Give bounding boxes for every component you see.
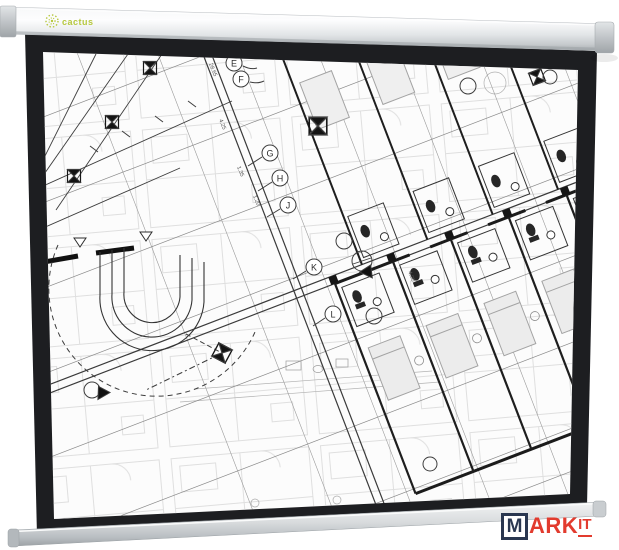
- svg-text:K: K: [311, 263, 317, 273]
- brand-name: cactus: [62, 17, 94, 27]
- watermark-letter-box: M: [501, 513, 528, 540]
- markit-watermark: M ARK IT: [501, 513, 592, 540]
- svg-text:G: G: [266, 149, 273, 159]
- svg-text:J: J: [286, 201, 291, 211]
- bar-left-cap: [8, 529, 19, 547]
- casing-left-cap: [0, 6, 16, 37]
- svg-text:F: F: [238, 75, 244, 85]
- svg-text:H: H: [277, 174, 284, 184]
- projection-screen-graphic: E F G H J K L 28.65 4.25: [0, 0, 619, 550]
- casing-right-cap: [595, 22, 614, 53]
- blueprint-drawing: E F G H J K L 28.65 4.25: [0, 0, 619, 550]
- watermark-text: ARK: [529, 513, 578, 538]
- svg-text:E: E: [231, 59, 237, 69]
- bar-right-cap: [593, 501, 606, 517]
- watermark-underlined-text: IT: [578, 514, 591, 537]
- svg-text:L: L: [330, 310, 335, 320]
- casing-shadow: [590, 54, 618, 62]
- product-photo: E F G H J K L 28.65 4.25: [0, 0, 619, 550]
